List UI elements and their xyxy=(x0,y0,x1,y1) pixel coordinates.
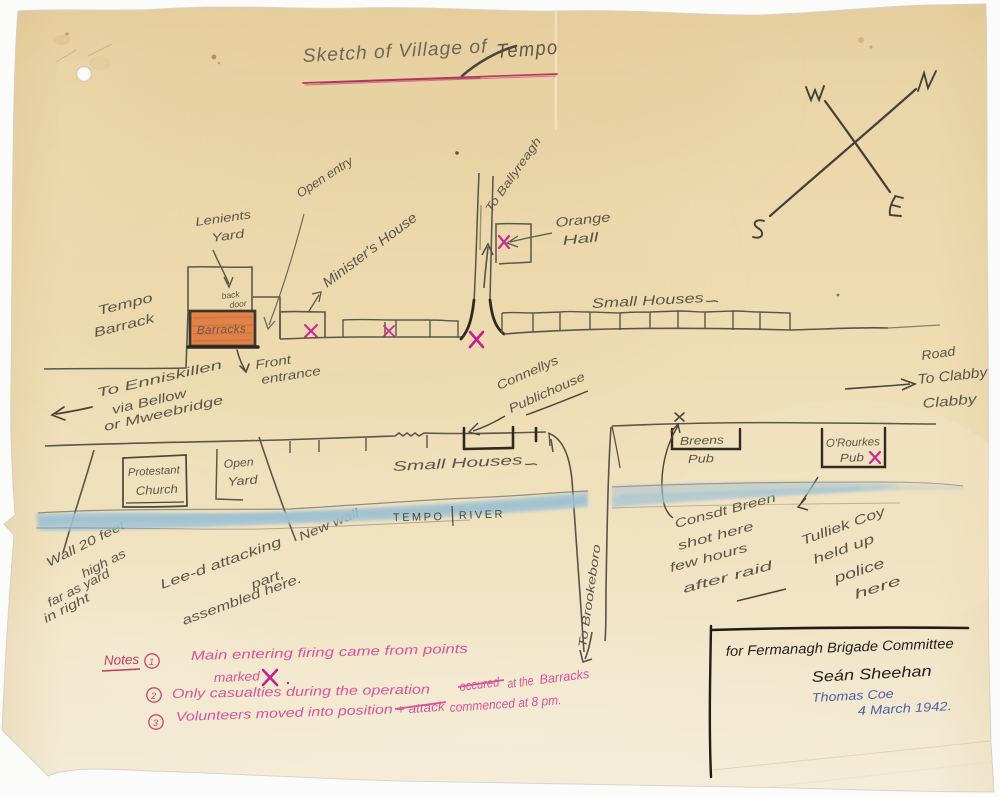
svg-text:3: 3 xyxy=(153,718,158,728)
svg-text:1: 1 xyxy=(149,657,154,667)
svg-text:2: 2 xyxy=(150,691,156,701)
svg-text:Notes: Notes xyxy=(104,652,140,668)
svg-text:Pub: Pub xyxy=(688,453,715,466)
svg-text:TEMPO: TEMPO xyxy=(393,511,445,524)
svg-text:Breens: Breens xyxy=(680,434,725,448)
svg-text:O'Rourkes: O'Rourkes xyxy=(826,436,881,450)
svg-text:marked: marked xyxy=(214,668,261,685)
svg-text:Barracks: Barracks xyxy=(197,323,247,337)
svg-text:RIVER: RIVER xyxy=(459,508,506,522)
svg-text:at the: at the xyxy=(507,673,535,691)
svg-text:Pub: Pub xyxy=(840,452,865,465)
svg-text:Yard: Yard xyxy=(227,472,258,489)
svg-text:Church: Church xyxy=(135,482,178,498)
